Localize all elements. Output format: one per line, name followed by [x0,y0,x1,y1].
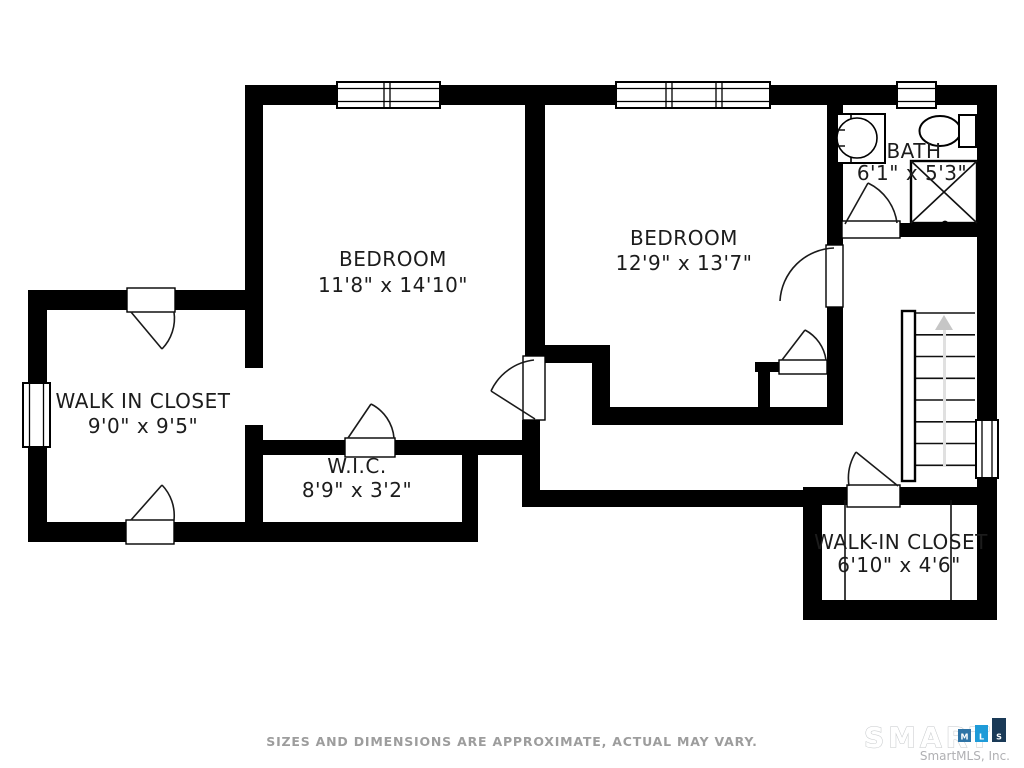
wall-bottom-left-a [28,522,126,542]
wall-bottom-left-b [174,522,478,542]
wall-bedroom1-left-upper [245,85,263,368]
window-closet-left [23,383,50,447]
bedroom2-dims: 12'9" x 13'7" [616,251,753,275]
disclaimer-text: SIZES AND DIMENSIONS ARE APPROXIMATE, AC… [266,734,757,749]
wall-alcove-top [755,362,780,372]
wall-wic-right [462,440,478,542]
logo-company-text: SmartMLS, Inc. [920,749,1010,763]
bath-name: BATH [886,139,941,163]
bedroom1-name: BEDROOM [339,247,447,271]
stair-railing [902,311,915,481]
wall-closet-left-west-upper [28,290,47,383]
window-stairs [976,420,998,478]
closet-left-dims: 9'0" x 9'5" [88,414,198,438]
wic-name: W.I.C. [327,454,386,478]
wall-hall-bottom [522,490,803,507]
wall-bedroom2-right-lower [827,305,843,425]
window-bedroom2 [616,82,770,108]
wall-closet-right-bottom [803,600,997,620]
wall-wic-top-a [250,440,346,455]
sink-icon [837,114,885,163]
logo-bar-l-letter: L [979,733,984,742]
room-label-bedroom2: BEDROOM 12'9" x 13'7" [616,226,753,275]
wall-closet-right-top-a [822,487,848,505]
floor-plan: BEDROOM 11'8" x 14'10" BEDROOM 12'9" x 1… [0,0,1024,768]
closet-left-name: WALK IN CLOSET [56,389,231,413]
window-bedroom1 [337,82,440,108]
stairs-arrow-stem [943,330,946,466]
logo-bar-s-letter: S [996,733,1002,742]
wall-closet-right-top-b [900,487,977,505]
bedroom2-name: BEDROOM [630,226,738,250]
wall-right-upper [977,85,997,420]
bedroom1-dims: 11'8" x 14'10" [318,273,468,297]
bath-dims: 6'1" x 5'3" [857,161,967,185]
wall-between-bedrooms [525,85,545,358]
wic-dims: 8'9" x 3'2" [302,478,412,502]
wall-bath-bottom-a [827,223,843,237]
closet-right-dims: 6'10" x 4'6" [837,553,961,577]
closet-right-name: WALK-IN CLOSET [814,530,988,554]
logo-bar-m-letter: M [961,733,969,742]
wall-closet-left-top-b [175,290,245,310]
window-bath [897,82,936,108]
wall-alcove-left [758,372,770,407]
wall-bedroom2-bottom [592,407,843,425]
